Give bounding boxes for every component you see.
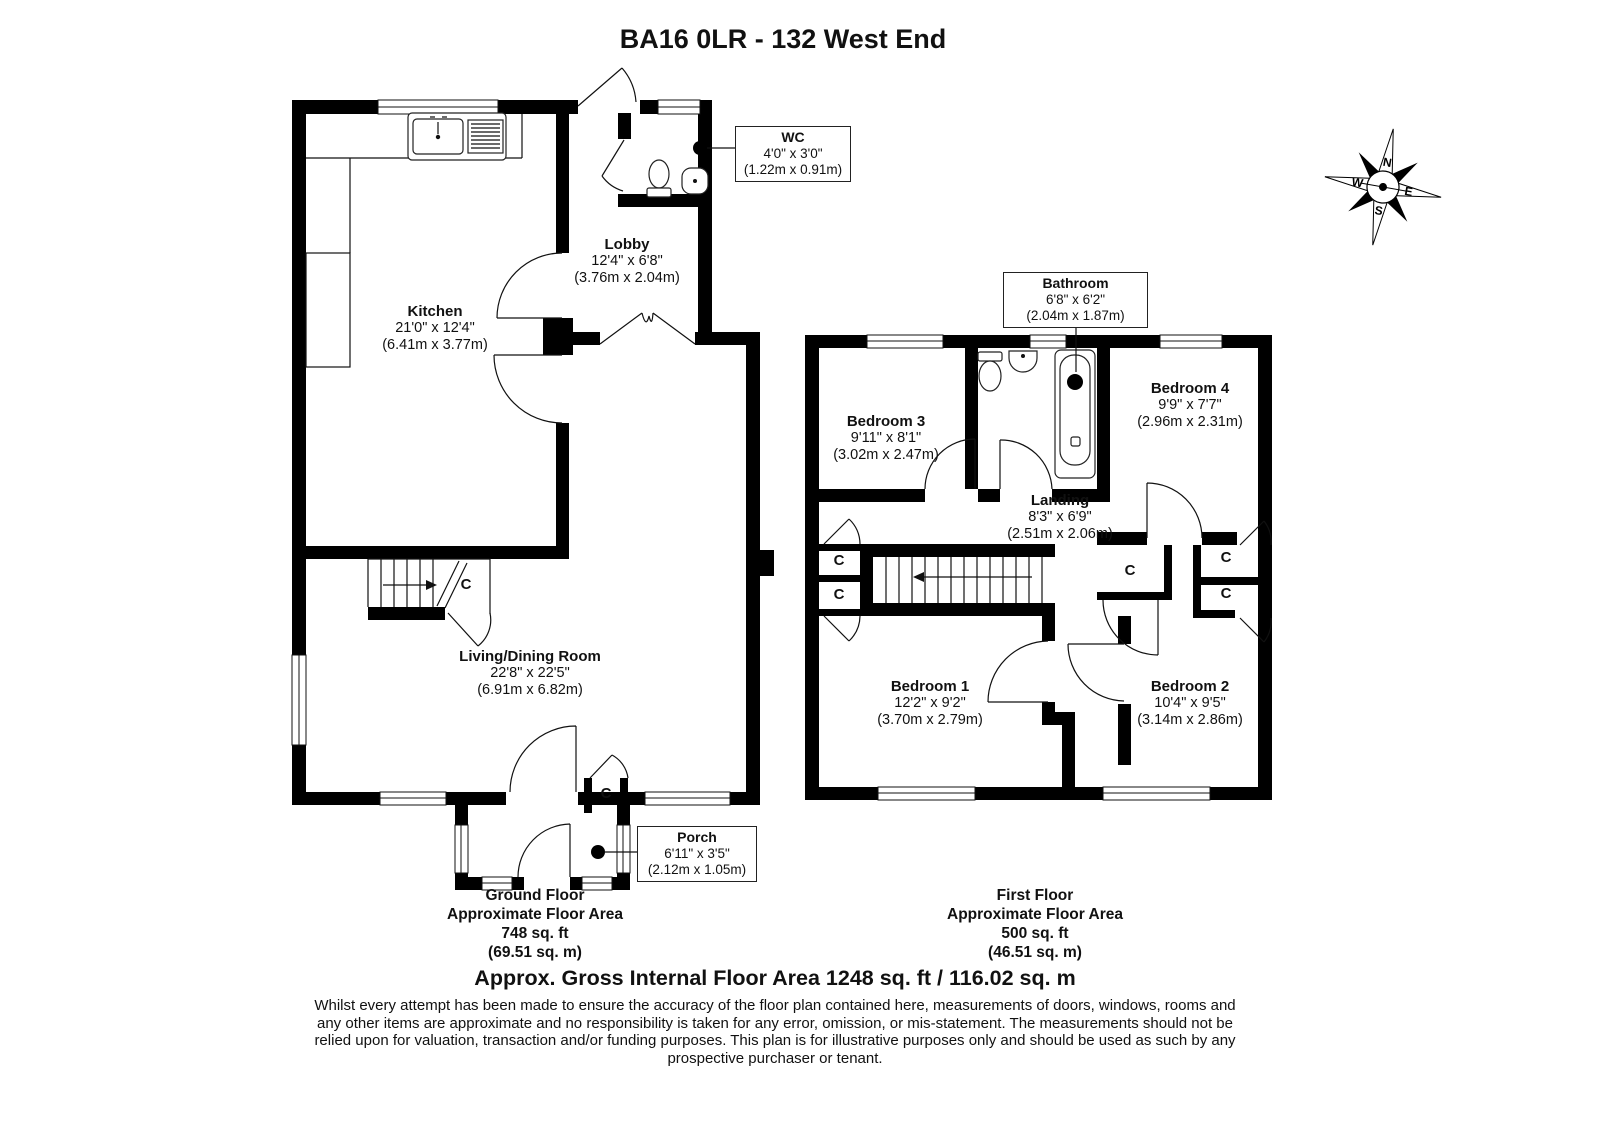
room-dims-imperial: 12'4" x 6'8": [574, 253, 680, 270]
ff-doors: [824, 439, 1271, 702]
room-dims-imperial: 9'11" x 8'1": [833, 430, 939, 447]
room-label-porch: Porch 6'11" x 3'5" (2.12m x 1.05m): [637, 826, 757, 882]
room-name: Kitchen: [382, 303, 488, 320]
room-label-kitchen: Kitchen 21'0" x 12'4" (6.41m x 3.77m): [382, 303, 488, 354]
bathroom-light-dot: [1067, 374, 1083, 390]
cupboard-label-ff-middle: C: [1125, 562, 1136, 579]
room-dims-metric: (2.96m x 2.31m): [1137, 414, 1243, 431]
room-name: Living/Dining Room: [459, 648, 601, 665]
floor-area-ft: 500 sq. ft: [947, 924, 1123, 943]
floor-area-label: Approximate Floor Area: [447, 905, 623, 924]
room-label-bathroom: Bathroom 6'8" x 6'2" (2.04m x 1.87m): [1003, 272, 1148, 328]
floor-area-m: (69.51 sq. m): [447, 943, 623, 962]
ground-floor-summary: Ground Floor Approximate Floor Area 748 …: [447, 886, 623, 962]
room-dims-metric: (3.76m x 2.04m): [574, 270, 680, 287]
room-dims-metric: (2.04m x 1.87m): [1009, 308, 1142, 325]
floor-area-label: Approximate Floor Area: [947, 905, 1123, 924]
room-label-bedroom2: Bedroom 2 10'4" x 9'5" (3.14m x 2.86m): [1137, 678, 1243, 729]
room-dims-metric: (6.91m x 6.82m): [459, 682, 601, 699]
room-dims-imperial: 6'8" x 6'2": [1009, 292, 1142, 309]
ff-bathroom-fixtures: [978, 350, 1095, 478]
compass-east-label: E: [1403, 184, 1413, 199]
page-title: BA16 0LR - 132 West End: [620, 24, 947, 55]
room-dims-imperial: 9'9" x 7'7": [1137, 397, 1243, 414]
cupboard-label-ff-right-upper: C: [1221, 549, 1232, 566]
floorplan-page: BA16 0LR - 132 West End: [0, 0, 1600, 1130]
room-dims-metric: (2.51m x 2.06m): [1007, 526, 1113, 543]
room-label-lobby: Lobby 12'4" x 6'8" (3.76m x 2.04m): [574, 236, 680, 287]
porch-light-dot: [591, 845, 605, 859]
cupboard-label-ff-right-lower: C: [1221, 585, 1232, 602]
room-label-living-dining: Living/Dining Room 22'8" x 22'5" (6.91m …: [459, 648, 601, 699]
room-dims-imperial: 8'3" x 6'9": [1007, 509, 1113, 526]
room-name: Bedroom 3: [833, 413, 939, 430]
floor-area-m: (46.51 sq. m): [947, 943, 1123, 962]
gf-walls: [292, 100, 774, 890]
cupboard-label-gf-porch: C: [601, 785, 612, 802]
gross-internal-area: Approx. Gross Internal Floor Area 1248 s…: [474, 966, 1075, 991]
room-label-wc: WC 4'0" x 3'0" (1.22m x 0.91m): [735, 126, 851, 182]
cupboard-label-gf-stairs: C: [461, 576, 472, 593]
room-name: WC: [741, 129, 845, 146]
room-label-landing: Landing 8'3" x 6'9" (2.51m x 2.06m): [1007, 492, 1113, 543]
room-label-bedroom1: Bedroom 1 12'2" x 9'2" (3.70m x 2.79m): [877, 678, 983, 729]
gf-kitchen-sink: [408, 113, 506, 160]
room-name: Lobby: [574, 236, 680, 253]
room-dims-imperial: 12'2" x 9'2": [877, 695, 983, 712]
room-name: Porch: [643, 829, 751, 846]
room-dims-metric: (3.14m x 2.86m): [1137, 712, 1243, 729]
ff-stairs: [886, 557, 1042, 603]
disclaimer-text: Whilst every attempt has been made to en…: [305, 997, 1245, 1067]
room-dims-imperial: 6'11" x 3'5": [643, 846, 751, 863]
room-name: Bedroom 2: [1137, 678, 1243, 695]
cupboard-label-ff-left-lower: C: [834, 586, 845, 603]
compass-rose: N E S W: [1318, 120, 1453, 255]
room-name: Landing: [1007, 492, 1113, 509]
floor-area-ft: 748 sq. ft: [447, 924, 623, 943]
room-dims-metric: (3.02m x 2.47m): [833, 447, 939, 464]
room-name: Bedroom 4: [1137, 380, 1243, 397]
floor-name: Ground Floor: [447, 886, 623, 905]
room-dims-imperial: 22'8" x 22'5": [459, 665, 601, 682]
room-dims-metric: (2.12m x 1.05m): [643, 862, 751, 879]
room-dims-imperial: 21'0" x 12'4": [382, 320, 488, 337]
ground-floor-plan: [270, 60, 790, 910]
room-dims-imperial: 4'0" x 3'0": [741, 146, 845, 163]
room-dims-metric: (1.22m x 0.91m): [741, 162, 845, 179]
room-dims-metric: (3.70m x 2.79m): [877, 712, 983, 729]
gf-stairs: [368, 559, 490, 614]
gf-windows: [292, 100, 730, 890]
room-name: Bedroom 1: [877, 678, 983, 695]
first-floor-summary: First Floor Approximate Floor Area 500 s…: [947, 886, 1123, 962]
floor-name: First Floor: [947, 886, 1123, 905]
room-dims-metric: (6.41m x 3.77m): [382, 337, 488, 354]
room-label-bedroom3: Bedroom 3 9'11" x 8'1" (3.02m x 2.47m): [833, 413, 939, 464]
room-name: Bathroom: [1009, 275, 1142, 292]
room-dims-imperial: 10'4" x 9'5": [1137, 695, 1243, 712]
room-label-bedroom4: Bedroom 4 9'9" x 7'7" (2.96m x 2.31m): [1137, 380, 1243, 431]
wc-light-dot: [693, 141, 707, 155]
cupboard-label-ff-left-upper: C: [834, 552, 845, 569]
